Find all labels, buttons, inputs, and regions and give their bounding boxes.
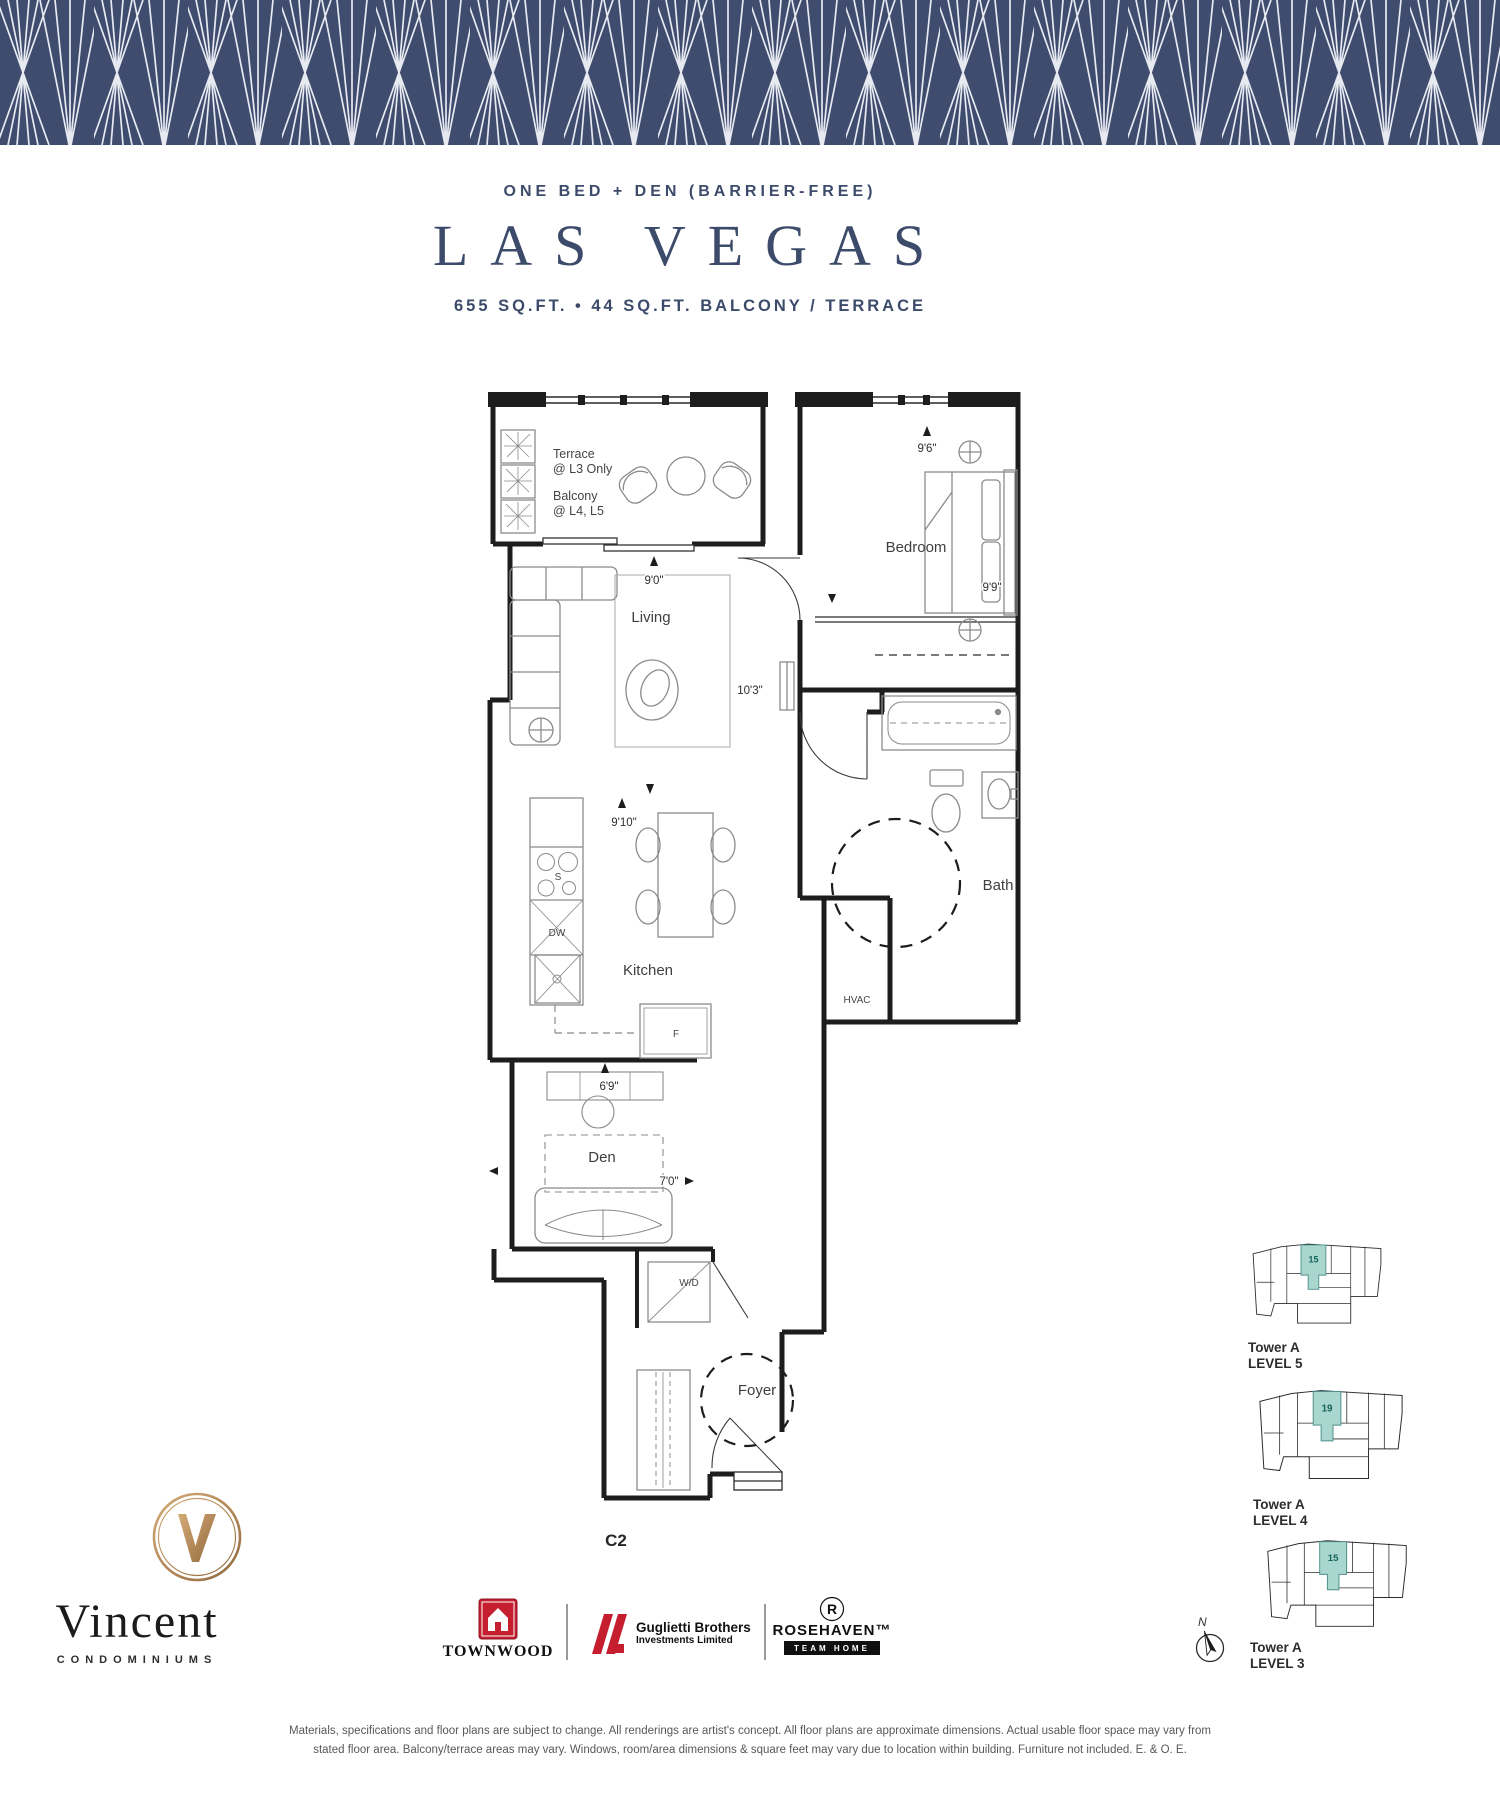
vincent-subtitle: CONDOMINIUMS	[28, 1654, 246, 1666]
dim-bedroom-width: 9'6"	[917, 443, 936, 455]
keyplan-label-level4: Tower A LEVEL 4	[1253, 1497, 1308, 1529]
fridge-label: F	[673, 1029, 679, 1040]
wall-blocks	[488, 392, 1020, 407]
dim-den-width: 6'9"	[599, 1081, 618, 1093]
keyplan-label-level5: Tower A LEVEL 5	[1248, 1340, 1303, 1372]
sliding-door	[543, 538, 694, 551]
room-label-living: Living	[631, 609, 670, 626]
keyplan-unit-level4: 19	[1322, 1403, 1333, 1414]
townwood-logo: TOWNWOOD	[440, 1598, 556, 1661]
room-label-den: Den	[588, 1149, 616, 1166]
deco-banner	[0, 0, 1500, 145]
dim-bedroom-depth: 9'9"	[982, 582, 1001, 594]
dim-kitchen-width: 9'10"	[611, 817, 636, 829]
keyplan-level5: 15	[1246, 1236, 1388, 1332]
terrace-sub-label: @ L3 Only	[553, 462, 613, 476]
door-swings	[712, 558, 867, 1472]
balcony-label: Balcony	[553, 489, 598, 503]
svg-text:R: R	[827, 1601, 837, 1617]
guglietti-gb-icon	[584, 1608, 628, 1658]
dim-den-depth: 7'0"	[659, 1176, 678, 1188]
compass-icon: N	[1184, 1608, 1242, 1670]
room-label-kitchen: Kitchen	[623, 962, 673, 979]
stove-label: S	[555, 872, 562, 883]
logo-divider-1	[566, 1604, 568, 1660]
guglietti-logo: Guglietti Brothers Investments Limited	[584, 1608, 751, 1658]
balcony-sub-label: @ L4, L5	[553, 504, 604, 518]
keyplan-unit-level5: 15	[1309, 1255, 1319, 1265]
dim-living-width: 9'0"	[644, 575, 663, 587]
townwood-house-icon	[478, 1598, 518, 1640]
bedroom-closet	[815, 617, 1018, 655]
dishwasher-label: DW	[549, 928, 566, 939]
dim-living-depth: 10'3"	[737, 685, 762, 697]
rosehaven-crest-icon: R	[819, 1596, 845, 1622]
compass-north-label: N	[1198, 1615, 1207, 1629]
rosehaven-logo: R ROSEHAVEN™ TEAM HOME	[776, 1596, 888, 1655]
logo-divider-2	[764, 1604, 766, 1660]
furniture	[501, 430, 1018, 1490]
room-label-bedroom: Bedroom	[886, 539, 947, 556]
room-label-hvac: HVAC	[843, 995, 870, 1006]
page-title: LAS VEGAS	[290, 212, 1090, 279]
vincent-wordmark: Vincent	[28, 1594, 246, 1649]
keyplan-level3: 15	[1248, 1534, 1426, 1634]
disclaimer-text: Materials, specifications and floor plan…	[230, 1722, 1270, 1760]
keyplan-unit-level3: 15	[1328, 1553, 1339, 1564]
keyplan-label-level3: Tower A LEVEL 3	[1250, 1640, 1305, 1672]
entry-sill	[734, 1472, 782, 1490]
terrace-label: Terrace	[553, 447, 595, 461]
vincent-logo	[148, 1488, 246, 1586]
room-label-foyer: Foyer	[738, 1382, 776, 1399]
unit-type-kicker: ONE BED + DEN (BARRIER-FREE)	[340, 183, 1040, 201]
room-label-bath: Bath	[983, 877, 1014, 894]
floor-plan: Terrace @ L3 Only Balcony @ L4, L5 Bedro…	[480, 300, 1030, 1580]
floorplan-page: ONE BED + DEN (BARRIER-FREE) LAS VEGAS 6…	[0, 0, 1500, 1800]
turning-circles	[701, 819, 960, 1446]
washer-dryer-label: W/D	[679, 1278, 698, 1289]
keyplan-level4: 19	[1252, 1382, 1410, 1488]
unit-code: C2	[605, 1531, 627, 1550]
